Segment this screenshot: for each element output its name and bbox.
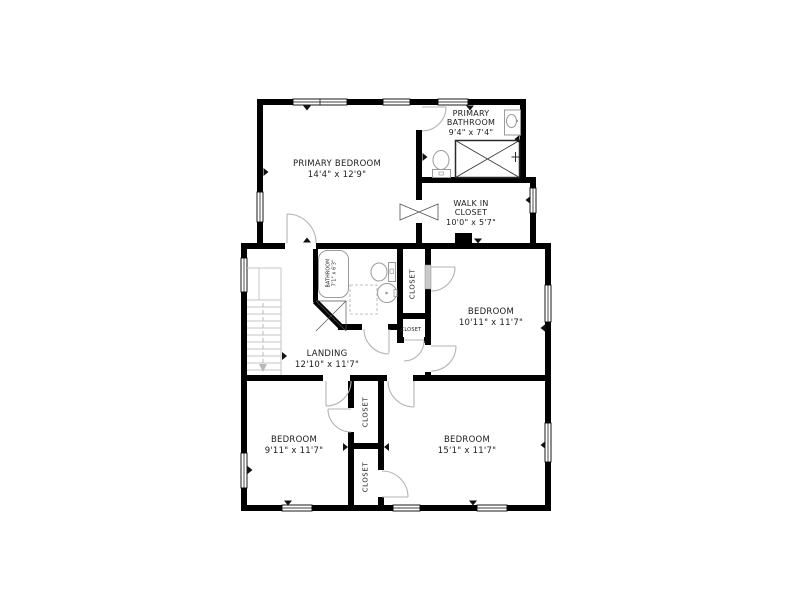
room-dims: 15'1" x 11'7" — [438, 446, 497, 457]
room-dims: 7'1" x 6'3" — [333, 259, 339, 288]
window-icon — [257, 192, 263, 222]
room-dims: 14'4" x 12'9" — [293, 170, 381, 181]
room-label-landing: LANDING 12'10" x 11'7" — [295, 349, 359, 371]
room-dims: 10'11" x 11'7" — [459, 318, 523, 329]
door-swing-icon — [422, 107, 446, 131]
room-dims: 12'10" x 11'7" — [295, 360, 359, 371]
stairs-icon — [247, 268, 281, 375]
room-label-primary-bathroom: PRIMARY BATHROOM 9'4" x 7'4" — [447, 109, 495, 137]
room-name: BEDROOM — [438, 435, 497, 446]
floor-plan: PRIMARY BEDROOM 14'4" x 12'9" PRIMARY BA… — [0, 0, 792, 612]
window-icon — [545, 423, 551, 462]
door-swing-icon — [431, 346, 456, 371]
room-label-hall-closet-small: CLOSET — [401, 327, 422, 333]
room-label-bedroom-bottom-left: BEDROOM 9'11" x 11'7" — [265, 435, 324, 457]
room-label-closet-lower: CLOSET — [362, 462, 371, 493]
door-swing-icon — [326, 381, 351, 406]
window-icon — [241, 453, 247, 488]
room-dims: 9'4" x 7'4" — [447, 128, 495, 137]
room-name: WALK IN — [446, 199, 496, 208]
room-label-walk-in-closet: WALK IN CLOSET 10'0" x 5'7" — [446, 199, 496, 227]
room-name: BATHROOM — [447, 118, 495, 127]
stairs-down-arrow — [259, 364, 267, 372]
room-label-hall-closet: CLOSET — [409, 269, 418, 300]
room-label-bathroom: BATHROOM 7'1" x 6'3" — [327, 259, 340, 288]
room-label-closet-upper: CLOSET — [362, 397, 371, 428]
sink-icon — [505, 110, 521, 135]
room-name: CLOSET — [409, 269, 418, 300]
door-swing-icon — [404, 340, 424, 361]
floor-plan-canvas — [0, 0, 792, 612]
room-label-primary-bedroom: PRIMARY BEDROOM 14'4" x 12'9" — [293, 159, 381, 181]
toilet-icon — [371, 263, 396, 282]
window-icon — [241, 258, 247, 292]
door-swing-icon — [287, 214, 316, 243]
room-dims: 10'0" x 5'7" — [446, 218, 496, 227]
room-name: LANDING — [295, 349, 359, 360]
window-icon — [438, 99, 468, 105]
toilet-icon — [433, 151, 451, 178]
room-label-bedroom-middle: BEDROOM 10'11" x 11'7" — [459, 307, 523, 329]
window-icon — [393, 505, 420, 511]
door-swing-icon — [328, 409, 351, 432]
sink-icon — [378, 284, 398, 303]
room-name: CLOSET — [446, 208, 496, 217]
window-icon — [282, 505, 312, 511]
door-swing-icon — [388, 381, 414, 407]
room-name: CLOSET — [362, 397, 371, 428]
void-hatch — [316, 301, 346, 331]
room-name: PRIMARY — [447, 109, 495, 118]
door-swing-icon — [425, 265, 455, 291]
room-name: BEDROOM — [459, 307, 523, 318]
room-name: PRIMARY BEDROOM — [293, 159, 381, 170]
window-icon — [477, 505, 507, 511]
door-swing-icon — [382, 471, 408, 497]
room-name: CLOSET — [362, 462, 371, 493]
room-dims: 9'11" x 11'7" — [265, 446, 324, 457]
shower-icon — [456, 141, 520, 178]
room-name: CLOSET — [401, 327, 422, 333]
opening-arrow-icon — [400, 204, 438, 220]
shower-area-dashed — [350, 285, 377, 314]
window-icon — [383, 99, 410, 105]
room-name: BEDROOM — [265, 435, 324, 446]
door-swing-icon — [364, 329, 389, 354]
window-icon — [293, 99, 347, 105]
room-label-bedroom-bottom-right: BEDROOM 15'1" x 11'7" — [438, 435, 497, 457]
window-icon — [545, 285, 551, 322]
window-icon — [530, 188, 536, 213]
